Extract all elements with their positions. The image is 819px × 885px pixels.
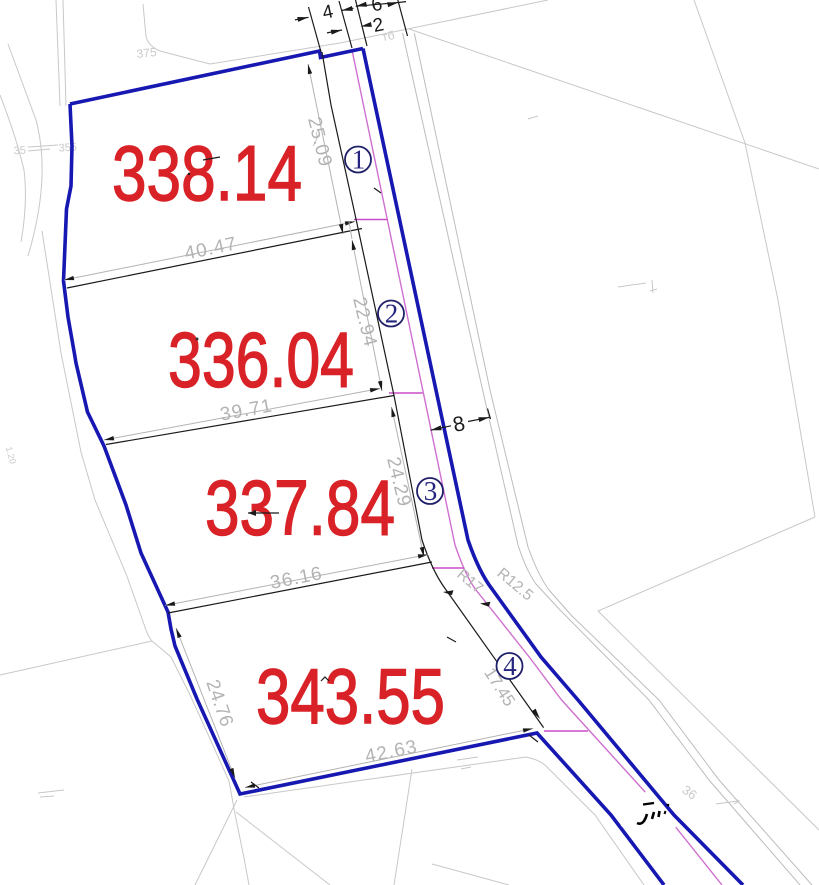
svg-text:338.14: 338.14 xyxy=(112,129,302,217)
svg-text:343.55: 343.55 xyxy=(256,652,445,740)
svg-text:375: 375 xyxy=(136,45,158,61)
svg-text:1: 1 xyxy=(352,145,366,175)
svg-text:355: 355 xyxy=(58,141,77,154)
svg-text:2: 2 xyxy=(385,299,399,329)
svg-text:4: 4 xyxy=(503,651,517,681)
svg-text:336.04: 336.04 xyxy=(168,316,354,404)
svg-text:337.84: 337.84 xyxy=(205,464,395,552)
svg-text:3: 3 xyxy=(424,476,438,506)
svg-text:35: 35 xyxy=(13,145,26,158)
